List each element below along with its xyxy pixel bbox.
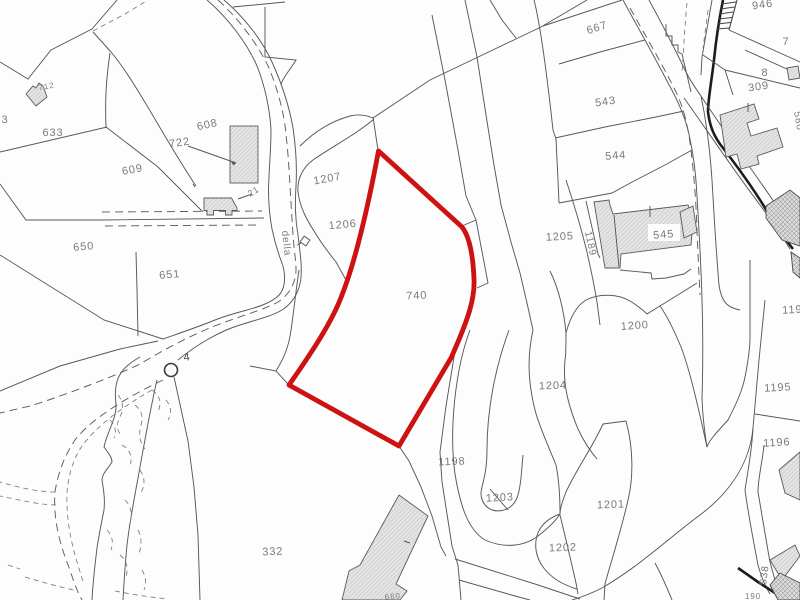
svg-text:1203: 1203: [486, 491, 515, 504]
svg-text:8: 8: [761, 67, 768, 79]
svg-text:660: 660: [384, 591, 401, 600]
svg-text:332: 332: [262, 545, 284, 558]
svg-text:1198: 1198: [438, 456, 466, 469]
svg-text:544: 544: [605, 149, 627, 163]
svg-text:1202: 1202: [549, 542, 577, 555]
svg-text:1200: 1200: [620, 319, 649, 333]
svg-text:1201: 1201: [597, 499, 625, 512]
svg-text:740: 740: [406, 289, 428, 302]
svg-text:1206: 1206: [328, 218, 357, 232]
svg-text:1197: 1197: [782, 303, 800, 316]
svg-text:545: 545: [653, 228, 675, 242]
svg-text:1196: 1196: [763, 436, 791, 449]
svg-text:3: 3: [1, 114, 8, 126]
svg-text:651: 651: [159, 268, 181, 282]
svg-text:633: 633: [42, 127, 63, 139]
svg-text:1195: 1195: [764, 381, 792, 394]
svg-text:190: 190: [745, 592, 761, 600]
svg-text:650: 650: [73, 240, 95, 254]
svg-text:1205: 1205: [546, 230, 575, 243]
svg-text:1204: 1204: [539, 380, 567, 393]
svg-text:7: 7: [782, 36, 789, 48]
